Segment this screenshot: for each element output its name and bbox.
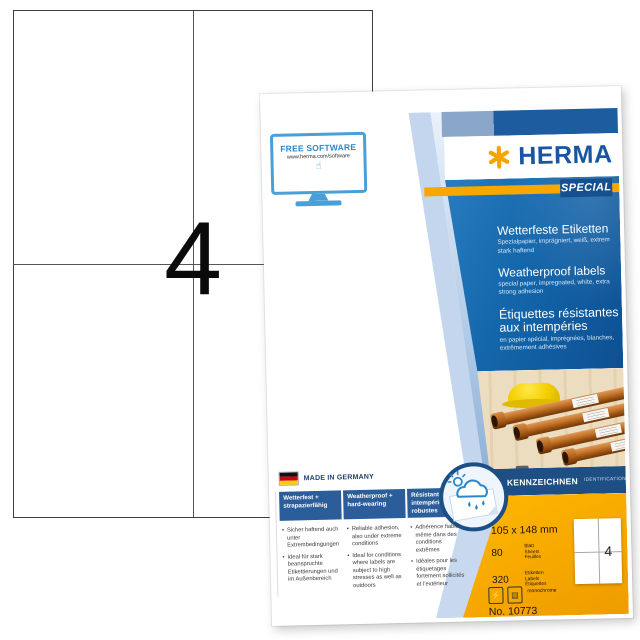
feature-list-fr: Adhérence fiable même dans des condition… [408, 524, 471, 594]
special-stripe-end [612, 183, 619, 192]
copier-icon: ▤ [507, 586, 522, 603]
free-software-title: FREE SOFTWARE [273, 142, 363, 154]
feature-list-de: Sicher haftend auch unter Extrembedingun… [280, 527, 344, 597]
category-label-en: IDENTIFICATION [584, 477, 626, 483]
product-image: 4 HERMA SPECIAL Wetterfe [0, 0, 640, 640]
feature-bullet: Reliable adhesion, also under extreme co… [347, 525, 403, 549]
pipe-label [595, 424, 622, 438]
label-count: 320 [492, 575, 509, 586]
pipe-label [572, 394, 599, 408]
cursor-hand-icon: ☝ [274, 160, 364, 173]
sheet-count: 80 [491, 548, 502, 559]
feature-list-en: Reliable adhesion, also under extreme co… [345, 525, 408, 595]
article-number: No. 10773 [489, 605, 538, 618]
claim-title-fr: Étiquettes résistantes aux intempéries [499, 306, 624, 336]
pipe-label [582, 408, 609, 422]
feature-heading-de: Wetterfest + strapazierfähig [279, 490, 342, 521]
feature-heading-en: Weatherproof + hard-wearing [343, 489, 406, 520]
made-in-germany: MADE IN GERMANY [279, 470, 375, 486]
german-flag-icon [279, 471, 299, 485]
mini-sheet-diagram: 4 [574, 518, 622, 584]
pipe-label [610, 437, 637, 451]
labels-per-sheet-count: 4 [164, 207, 222, 311]
series-label: SPECIAL [560, 178, 612, 197]
herma-logo: HERMA [486, 140, 613, 172]
feature-bullet: Idéales pour les étiquetages fortement s… [411, 558, 467, 589]
weatherproof-icon [437, 461, 510, 534]
made-in-label: MADE IN GERMANY [304, 473, 374, 482]
label-unit-de: Etiketten [525, 571, 546, 577]
feature-bullet: Ideal für stark beanspruchte Etikettieru… [282, 553, 340, 584]
sheet-unit-fr: Feuilles [525, 555, 542, 561]
sheet-units: Blatt Sheets Feuilles [524, 544, 541, 561]
package-front: HERMA SPECIAL Wetterfeste Etiketten Spez… [260, 86, 633, 626]
free-software-monitor: FREE SOFTWARE www.herma.com/software ☝ [270, 132, 367, 195]
claim-subtitle-fr: en papier spécial, imprégnées, blanches,… [500, 334, 624, 353]
brand-name: HERMA [518, 140, 613, 171]
feature-bullet: Sicher haftend auch unter Extrembedingun… [282, 527, 339, 551]
print-mode: monochrome [527, 588, 556, 595]
mini-sheet-count: 4 [604, 542, 612, 558]
claim-title-en: Weatherproof labels [498, 264, 622, 280]
claim-subtitle-en: special paper, impregnated, white, extra… [498, 278, 622, 297]
multilingual-claims: Wetterfeste Etiketten Spezialpapier, imp… [497, 222, 624, 364]
category-label-de: KENNZEICHNEN [507, 476, 578, 488]
label-units: Etiketten Labels Étiquettes [525, 571, 547, 588]
claim-subtitle-de: Spezialpapier, imprägniert, weiß, extrem… [497, 236, 621, 255]
claim-title-de: Wetterfeste Etiketten [497, 222, 621, 238]
feature-bullet: Ideal for conditions where labels are su… [347, 552, 403, 591]
brand-band: HERMA [444, 133, 619, 180]
monitor-base [295, 200, 341, 206]
laser-printer-icon: ⚡ [488, 587, 503, 604]
herma-star-icon [486, 144, 512, 170]
